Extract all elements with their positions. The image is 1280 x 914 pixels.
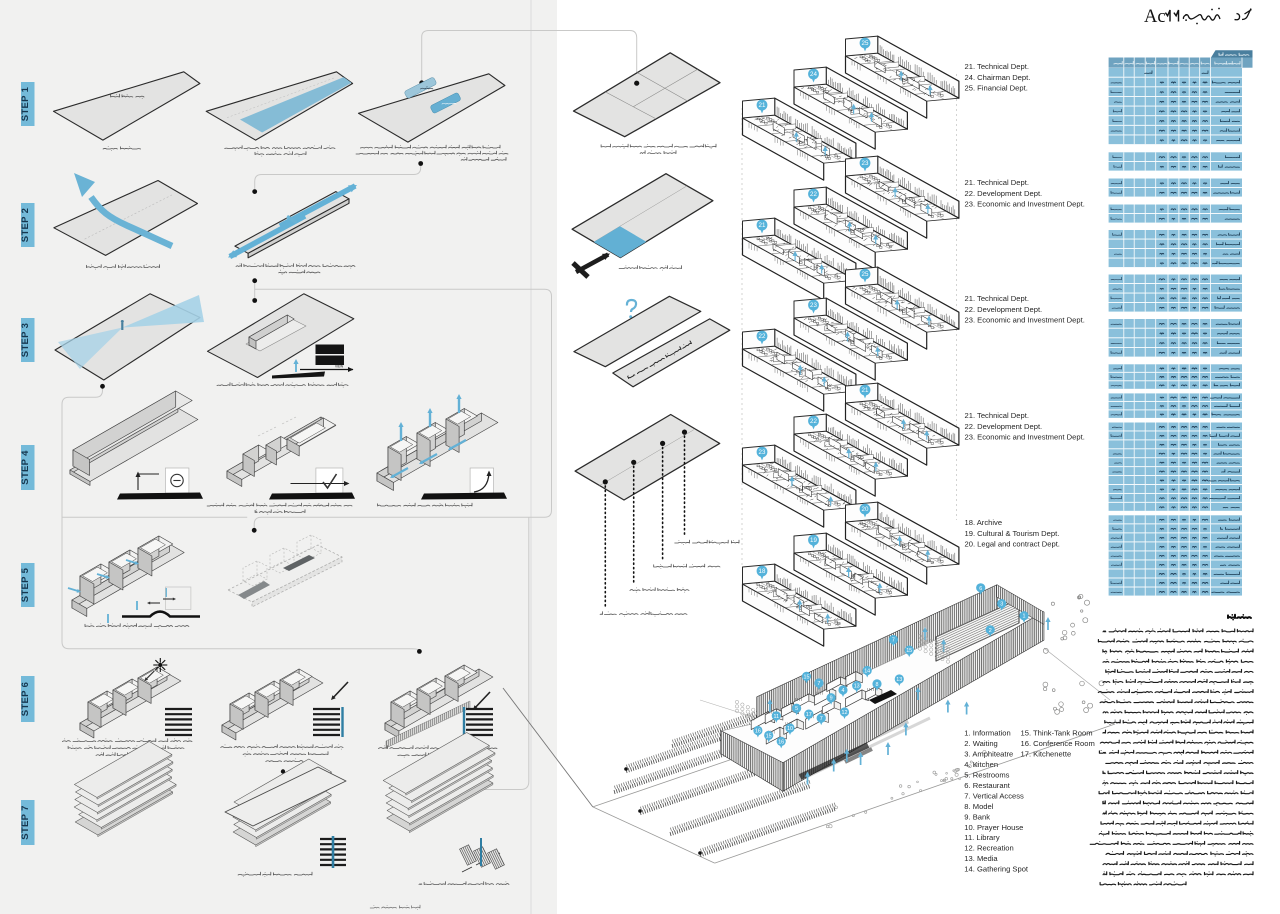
svg-text:25. Financial Dept.: 25. Financial Dept. <box>965 83 1028 92</box>
svg-text:21. Technical Dept.: 21. Technical Dept. <box>965 178 1029 187</box>
svg-text:15: 15 <box>804 674 810 680</box>
svg-text:3. Amphiteatre: 3. Amphiteatre <box>964 750 1013 759</box>
svg-text:21: 21 <box>759 102 766 109</box>
svg-text:23. Economic and Investment De: 23. Economic and Investment Dept. <box>965 432 1085 441</box>
svg-text:STEP 2: STEP 2 <box>20 208 31 242</box>
svg-text:Ac: Ac <box>1144 7 1166 27</box>
svg-text:9: 9 <box>830 696 833 702</box>
svg-text:25: 25 <box>862 40 869 47</box>
svg-text:17: 17 <box>806 712 812 718</box>
svg-text:13: 13 <box>896 677 902 683</box>
svg-text:7: 7 <box>817 681 820 687</box>
svg-text:4. Kitchen: 4. Kitchen <box>964 760 998 769</box>
svg-text:23. Economic and Investment De: 23. Economic and Investment Dept. <box>965 199 1085 208</box>
svg-text:22: 22 <box>759 333 766 340</box>
svg-text:STEP 3: STEP 3 <box>20 323 31 357</box>
svg-text:STEP 4: STEP 4 <box>20 450 31 485</box>
svg-text:15: 15 <box>766 733 772 739</box>
svg-text:20. Legal and contract Dept.: 20. Legal and contract Dept. <box>965 539 1060 548</box>
svg-text:12: 12 <box>842 710 848 716</box>
svg-text:16. Conference Room: 16. Conference Room <box>1021 739 1095 748</box>
svg-text:7: 7 <box>820 716 823 722</box>
svg-text:21. Technical Dept.: 21. Technical Dept. <box>965 294 1029 303</box>
svg-text:23: 23 <box>810 302 817 309</box>
svg-text:STEP 7: STEP 7 <box>20 805 31 839</box>
svg-text:STEP 6: STEP 6 <box>20 682 31 716</box>
svg-text:23: 23 <box>759 449 766 456</box>
svg-text:15: 15 <box>906 648 912 654</box>
svg-text:STEP 5: STEP 5 <box>20 567 31 602</box>
svg-text:18. Archive: 18. Archive <box>965 518 1003 527</box>
svg-text:21. Technical Dept.: 21. Technical Dept. <box>965 62 1029 71</box>
svg-text:24. Chairman Dept.: 24. Chairman Dept. <box>965 73 1031 82</box>
svg-text:21: 21 <box>759 222 766 229</box>
svg-text:5. Restrooms: 5. Restrooms <box>964 771 1009 780</box>
svg-text:8. Model: 8. Model <box>964 802 993 811</box>
svg-text:17. Kitchenette: 17. Kitchenette <box>1021 750 1072 759</box>
svg-text:14. Gathering Spot: 14. Gathering Spot <box>964 865 1029 874</box>
svg-text:23: 23 <box>862 160 869 167</box>
svg-text:6. Restaurant: 6. Restaurant <box>964 781 1010 790</box>
svg-text:22. Development Dept.: 22. Development Dept. <box>965 189 1043 198</box>
svg-text:22. Development Dept.: 22. Development Dept. <box>965 305 1043 314</box>
svg-text:STEP 1: STEP 1 <box>20 86 31 121</box>
svg-text:1. Information: 1. Information <box>964 729 1010 738</box>
svg-text:10. Prayer House: 10. Prayer House <box>964 823 1023 832</box>
svg-text:12. Recreation: 12. Recreation <box>964 844 1013 853</box>
svg-text:5: 5 <box>795 706 798 712</box>
svg-text:3: 3 <box>1000 602 1003 608</box>
svg-text:7: 7 <box>892 638 895 644</box>
svg-text:2: 2 <box>989 628 992 634</box>
svg-text:16: 16 <box>778 739 784 745</box>
svg-text:25: 25 <box>862 271 869 278</box>
svg-text:22: 22 <box>810 191 817 198</box>
svg-text:1: 1 <box>1023 614 1026 620</box>
svg-text:11: 11 <box>773 714 779 720</box>
svg-text:15. Think-Tank Room: 15. Think-Tank Room <box>1021 729 1093 738</box>
svg-text:7. Vertical Access: 7. Vertical Access <box>964 791 1024 800</box>
svg-text:18: 18 <box>759 568 766 575</box>
svg-text:20: 20 <box>862 506 869 513</box>
svg-text:23. Economic and Investment De: 23. Economic and Investment Dept. <box>965 315 1085 324</box>
svg-text:14: 14 <box>864 669 870 675</box>
svg-text:13. Media: 13. Media <box>964 854 998 863</box>
svg-text:19: 19 <box>810 537 817 544</box>
svg-text:11. Library: 11. Library <box>964 833 1000 842</box>
svg-text:6: 6 <box>979 586 982 592</box>
svg-text:21: 21 <box>862 387 869 394</box>
svg-text:22: 22 <box>810 418 817 425</box>
svg-text:10: 10 <box>787 726 793 732</box>
svg-text:8: 8 <box>876 682 879 688</box>
svg-text:22. Development Dept.: 22. Development Dept. <box>965 422 1043 431</box>
svg-text:VIEW: VIEW <box>335 365 343 369</box>
svg-text:16: 16 <box>755 729 761 735</box>
svg-text::: : <box>1184 9 1188 25</box>
svg-text:2. Waiting: 2. Waiting <box>964 739 997 748</box>
svg-text:24: 24 <box>810 71 817 78</box>
svg-text:21. Technical Dept.: 21. Technical Dept. <box>965 411 1029 420</box>
svg-text:13: 13 <box>854 684 860 690</box>
svg-text:9. Bank: 9. Bank <box>964 812 990 821</box>
svg-text:19. Cultural & Tourism Dept.: 19. Cultural & Tourism Dept. <box>965 529 1060 538</box>
svg-text:4: 4 <box>842 688 845 694</box>
